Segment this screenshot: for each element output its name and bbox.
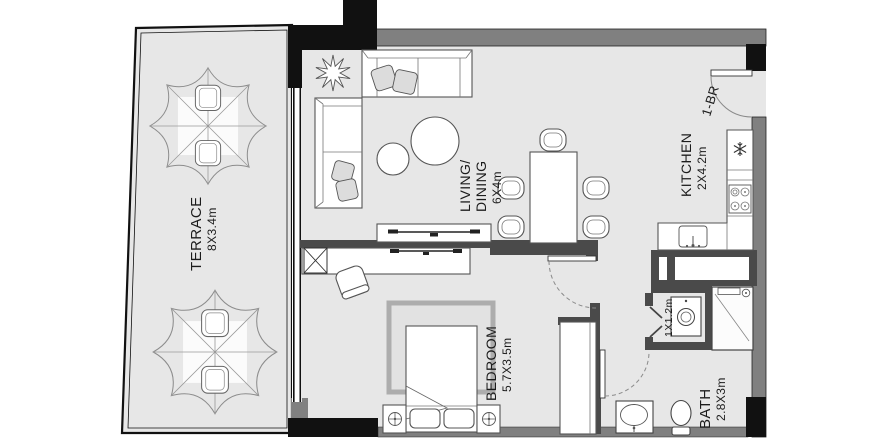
bath-dims: 2.8X3m [714, 377, 728, 421]
living-dims: 6X4m [490, 171, 504, 204]
dining-chair [540, 129, 566, 151]
living-label-line2: DINING [473, 161, 489, 212]
sofa-large [362, 50, 472, 97]
outdoor-chair [202, 366, 229, 393]
living-label-line1: LIVING/ [457, 159, 473, 212]
outdoor-chair [195, 141, 220, 166]
dining-chair [583, 177, 609, 199]
tv-console [377, 224, 491, 242]
bottom-right-column [746, 397, 766, 437]
nightstand [477, 405, 500, 433]
bath-label: BATH [697, 389, 714, 430]
window-wall-column [288, 25, 302, 88]
terrace-dims: 8X3.4m [205, 207, 219, 251]
bed-pillow [444, 409, 474, 428]
bed-pillow [410, 409, 440, 428]
parasol-spokes [153, 290, 277, 414]
umbrella-table-set-1 [150, 68, 266, 184]
umbrella-table-set-2 [153, 290, 277, 414]
kitchen-label: KITCHEN [678, 133, 694, 197]
washing-machine-icon [671, 297, 701, 336]
dining-chair [583, 216, 609, 238]
bedroom-label: BEDROOM [483, 326, 499, 401]
utility-dims: 1X1.2m [663, 298, 675, 337]
outdoor-chair [202, 310, 229, 337]
nightstand [383, 405, 406, 433]
dining-table [530, 152, 577, 243]
bedroom-dims: 5.7X3.5m [500, 337, 514, 392]
toilet [671, 401, 691, 436]
outdoor-chair [195, 85, 220, 110]
lamp-icon [389, 413, 402, 426]
sofa-pillow [392, 69, 418, 95]
floor-plan-canvas: TERRACE 8X3.4m LIVING/ DINING 6X4m KITCH… [0, 0, 890, 440]
closet-partition [667, 257, 675, 280]
bedroom-door-leaf [548, 256, 596, 261]
kitchen-dims: 2X4.2m [695, 146, 709, 190]
bathroom-door-leaf [600, 350, 605, 398]
wardrobe [560, 322, 596, 434]
sofa-pillow [335, 178, 359, 202]
hallway-closet [651, 250, 757, 286]
desk [302, 248, 470, 274]
top-wall-black-notch [343, 0, 377, 50]
sofa-small [315, 98, 362, 208]
island-sink [679, 226, 707, 247]
floor-plan: TERRACE 8X3.4m LIVING/ DINING 6X4m KITCH… [0, 0, 890, 440]
bed [406, 326, 477, 432]
dining-chair [498, 216, 524, 238]
lamp-icon [483, 413, 496, 426]
bottom-wall-black [288, 418, 378, 437]
entry-door-leaf [711, 70, 752, 76]
entry-column [746, 44, 766, 71]
terrace-label: TERRACE [188, 197, 205, 271]
bathroom-sink [616, 401, 653, 433]
structural-column [304, 248, 327, 273]
coffee-table-small [377, 143, 409, 175]
coffee-table-large [411, 117, 459, 165]
shower-enclosure [712, 287, 753, 350]
